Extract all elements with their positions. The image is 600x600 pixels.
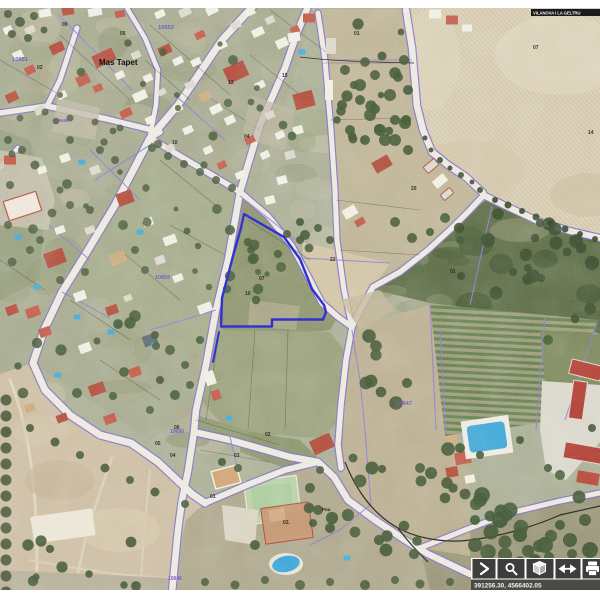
svg-text:03: 03 — [234, 453, 240, 459]
svg-text:15: 15 — [282, 73, 288, 79]
svg-text:05: 05 — [120, 31, 126, 37]
svg-text:09: 09 — [62, 22, 68, 28]
svg-text:10: 10 — [172, 140, 178, 146]
svg-text:10647: 10647 — [396, 401, 412, 407]
svg-text:02.: 02. — [283, 520, 291, 526]
svg-text:10648: 10648 — [55, 118, 68, 123]
svg-text:20: 20 — [411, 186, 417, 192]
svg-text:Mas Tapet: Mas Tapet — [99, 58, 138, 67]
svg-text:391256.30, 4566402.05: 391256.30, 4566402.05 — [474, 583, 542, 590]
svg-text:10: 10 — [245, 291, 251, 297]
svg-text:Pou: Pou — [322, 507, 331, 512]
svg-text:10652: 10652 — [158, 25, 174, 31]
svg-text:04: 04 — [170, 453, 176, 459]
svg-text:VILANOVA I LA GELTRU: VILANOVA I LA GELTRU — [533, 11, 580, 16]
svg-text:22: 22 — [330, 257, 336, 263]
svg-text:07: 07 — [533, 45, 539, 51]
svg-text:04: 04 — [244, 134, 250, 140]
svg-text:02: 02 — [37, 65, 43, 71]
svg-text:10646: 10646 — [168, 576, 182, 582]
svg-text:14: 14 — [588, 130, 594, 136]
svg-text:13: 13 — [228, 80, 234, 86]
svg-text:02: 02 — [265, 432, 271, 438]
svg-text:01: 01 — [210, 494, 216, 500]
svg-text:10650: 10650 — [170, 429, 184, 435]
svg-text:07: 07 — [259, 276, 265, 282]
svg-text:01: 01 — [450, 269, 456, 275]
svg-text:10650: 10650 — [155, 275, 170, 281]
svg-text:10651: 10651 — [12, 57, 29, 63]
svg-text:01: 01 — [354, 31, 360, 37]
svg-text:05: 05 — [155, 441, 161, 447]
